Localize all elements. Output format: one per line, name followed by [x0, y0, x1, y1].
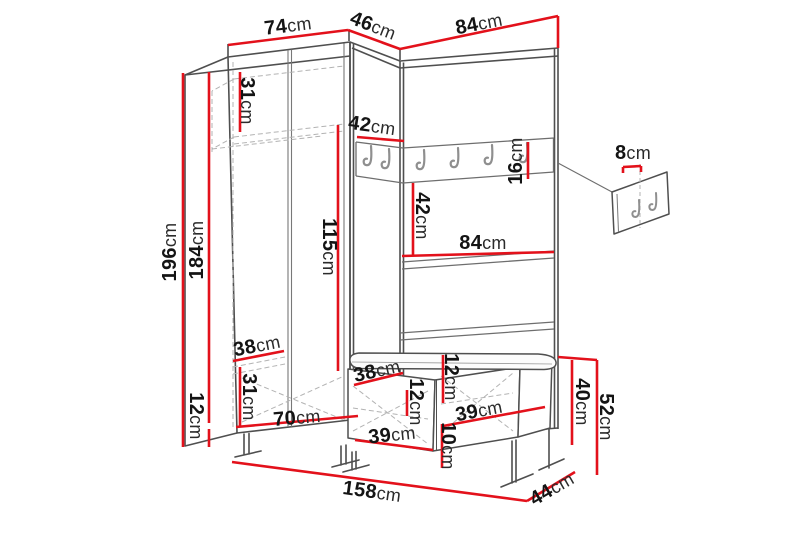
- coat-hook-icon: [364, 146, 372, 165]
- dimension-line: [527, 472, 575, 501]
- wall-hook-panel: [558, 163, 669, 234]
- leader-line: [558, 163, 612, 192]
- coat-hooks-rail: [364, 143, 528, 169]
- dimension-line: [558, 357, 597, 360]
- coat-hook-icon: [382, 149, 390, 168]
- dimension-line: [357, 137, 404, 141]
- wardrobe-inner-lines: [288, 44, 344, 428]
- panel-shelves: [400, 251, 554, 340]
- dimension-line: [623, 166, 641, 167]
- dimension-line: [402, 252, 554, 256]
- coat-hook-icon: [520, 143, 528, 162]
- bench-cushion: [350, 353, 556, 370]
- dimension-line: [348, 30, 400, 49]
- furniture-line-art: [0, 0, 800, 533]
- dimension-line: [228, 30, 348, 45]
- coat-hook-icon: [485, 145, 493, 164]
- dimension-line: [400, 16, 558, 49]
- dimension-line: [233, 351, 284, 361]
- dimension-line: [232, 462, 527, 501]
- coat-hook-icon: [417, 150, 425, 169]
- coat-hook-icon: [451, 148, 459, 167]
- bench-box: [348, 359, 552, 451]
- diagram-canvas: 74cm46cm84cm31cm42cm16cm8cm42cm84cm115cm…: [0, 0, 800, 533]
